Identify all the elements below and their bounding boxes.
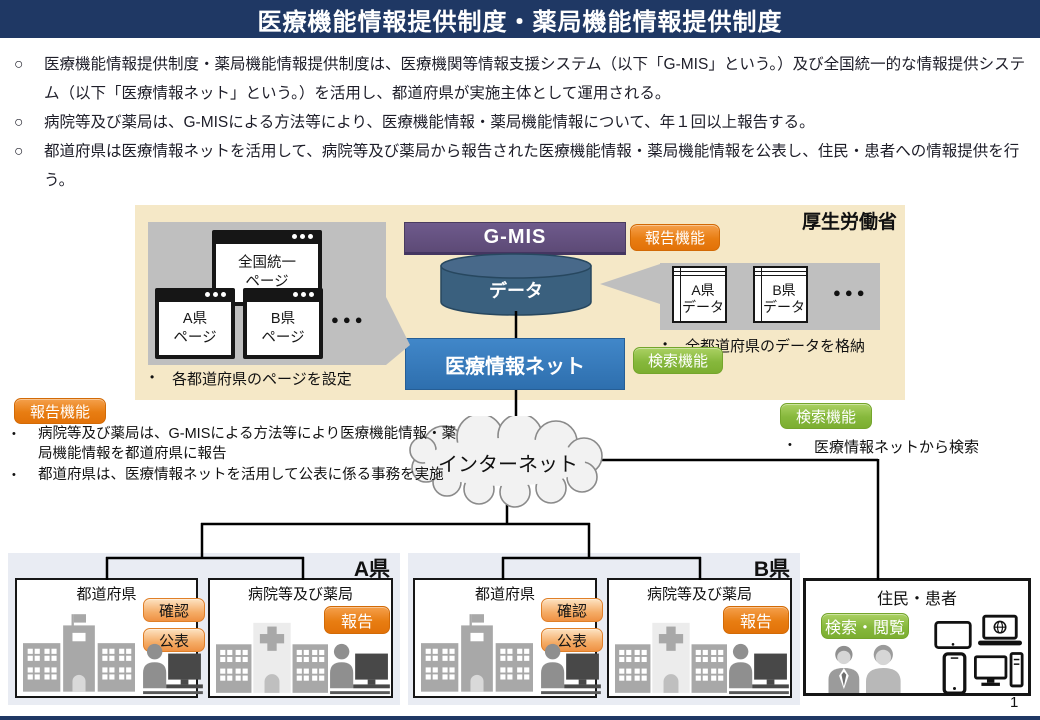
- intro-text: ○ 医療機能情報提供制度・薬局機能情報提供制度は、医療機関等情報支援システム（以…: [14, 50, 1028, 195]
- caption-text: 各都道府県のページを設定: [172, 368, 352, 389]
- bullet-marker: ○: [14, 50, 44, 108]
- data-cylinder: データ: [435, 251, 597, 317]
- confirm-badge: 確認: [143, 598, 205, 622]
- data-table-icon-a: A県 データ: [672, 266, 727, 323]
- page-title: 医療機能情報提供制度・薬局機能情報提供制度: [258, 2, 783, 37]
- ellipsis-dots: ●●●: [331, 312, 367, 327]
- note-bullet: • 病院等及び薬局は、G-MISによる方法等により医療機能情報・薬局機能情報を都…: [12, 424, 467, 465]
- intro-bullet: ○ 病院等及び薬局は、G-MISによる方法等により、医療機能情報・薬局機能情報に…: [14, 108, 1028, 137]
- report-function-badge-left: 報告機能: [14, 398, 106, 424]
- bottom-accent-bar: [0, 716, 1040, 720]
- person-computer-icon: [537, 642, 603, 696]
- mhlw-panel: 厚生労働省 全国統一 ページ A県 ページ B県: [135, 205, 905, 400]
- slide-root: 医療機能情報提供制度・薬局機能情報提供制度 ○ 医療機能情報提供制度・薬局機能情…: [0, 0, 1040, 720]
- note-text: 病院等及び薬局は、G-MISによる方法等により医療機能情報・薬局機能情報を都道府…: [38, 424, 467, 465]
- desktop-pc-icon: [974, 652, 1024, 693]
- bullet-marker: •: [788, 436, 814, 457]
- cylinder-label: データ: [435, 277, 597, 303]
- person-computer-icon: [139, 642, 205, 696]
- bullet-marker: ○: [14, 137, 44, 195]
- table-label: データ: [763, 299, 805, 316]
- page-number: 1: [1010, 694, 1018, 711]
- report-badge: 報告: [723, 606, 789, 634]
- table-label: データ: [682, 299, 724, 316]
- confirm-badge: 確認: [541, 598, 603, 622]
- hospital-building-icon: [216, 618, 328, 693]
- bullet-marker: •: [12, 424, 38, 465]
- hospital-building-icon: [615, 618, 727, 693]
- hospital-box-b: 病院等及び薬局 報告: [607, 578, 792, 698]
- residents-box: 住民・患者 検索・閲覧: [803, 578, 1031, 696]
- residents-title: 住民・患者: [806, 585, 1028, 609]
- hospital-title: 病院等及び薬局: [609, 583, 790, 604]
- medical-info-net-box: 医療情報ネット: [405, 338, 625, 390]
- laptop-icon: [978, 614, 1022, 648]
- table-label: A県: [691, 282, 714, 299]
- window-label: A県: [183, 310, 207, 329]
- bullet-text: 病院等及び薬局は、G-MISによる方法等により、医療機能情報・薬局機能情報につい…: [44, 108, 1028, 137]
- report-note: • 病院等及び薬局は、G-MISによる方法等により医療機能情報・薬局機能情報を都…: [12, 424, 467, 485]
- search-note: • 医療情報ネットから検索: [788, 436, 979, 457]
- bullet-text: 医療機能情報提供制度・薬局機能情報提供制度は、医療機関等情報支援システム（以下「…: [44, 50, 1028, 108]
- bullet-marker: ○: [14, 108, 44, 137]
- browser-window-pref-a: A県 ページ: [155, 288, 235, 359]
- tablet-icon: [934, 621, 972, 649]
- note-bullet: • 都道府県は、医療情報ネットを活用して公表に係る事務を実施: [12, 465, 467, 485]
- government-building-icon: [421, 612, 533, 692]
- hospital-title: 病院等及び薬局: [210, 583, 391, 604]
- government-building-icon: [23, 612, 135, 692]
- prefecture-a-panel: A県 都道府県 確認 公表 病院等及び薬局 報告: [8, 553, 400, 705]
- search-view-badge: 検索・閲覧: [821, 613, 909, 639]
- person-computer-icon: [725, 642, 791, 696]
- window-label: 全国統一: [238, 254, 296, 273]
- gov-box-b: 都道府県 確認 公表: [413, 578, 597, 698]
- window-label: B県: [271, 310, 295, 329]
- bullet-marker: •: [150, 368, 172, 389]
- window-dots-icon: [221, 292, 226, 297]
- bullet-text: 都道府県は医療情報ネットを活用して、病院等及び薬局から報告された医療機能情報・薬…: [44, 137, 1028, 195]
- slide-title-bar: 医療機能情報提供制度・薬局機能情報提供制度: [0, 0, 1040, 38]
- window-label: ページ: [261, 329, 304, 348]
- search-function-badge: 検索機能: [633, 347, 723, 374]
- search-function-badge-right: 検索機能: [780, 403, 872, 429]
- prefecture-pages-panel: 全国統一 ページ A県 ページ B県 ページ ●●●: [148, 222, 386, 365]
- intro-bullet: ○ 医療機能情報提供制度・薬局機能情報提供制度は、医療機関等情報支援システム（以…: [14, 50, 1028, 108]
- note-text: 都道府県は、医療情報ネットを活用して公表に係る事務を実施: [38, 465, 444, 485]
- person-computer-icon: [326, 642, 392, 696]
- mhlw-label: 厚生労働省: [802, 207, 897, 234]
- hospital-box-a: 病院等及び薬局 報告: [208, 578, 393, 698]
- residents-people-icon: [822, 643, 910, 693]
- table-label: B県: [772, 282, 795, 299]
- report-badge: 報告: [324, 606, 390, 634]
- data-table-icon-b: B県 データ: [753, 266, 808, 323]
- smartphone-icon: [942, 652, 967, 695]
- pages-caption: • 各都道府県のページを設定: [150, 368, 352, 389]
- prefecture-data-panel: A県 データ B県 データ ●●●: [660, 263, 880, 330]
- gov-box-a: 都道府県 確認 公表: [15, 578, 198, 698]
- browser-window-pref-b: B県 ページ: [243, 288, 323, 359]
- bullet-marker: •: [12, 465, 38, 485]
- window-label: ページ: [173, 329, 216, 348]
- report-function-badge: 報告機能: [630, 224, 720, 251]
- window-dots-icon: [309, 292, 314, 297]
- note-text: 医療情報ネットから検索: [814, 436, 979, 457]
- ellipsis-dots: ●●●: [833, 285, 869, 300]
- window-dots-icon: [308, 234, 313, 239]
- intro-bullet: ○ 都道府県は医療情報ネットを活用して、病院等及び薬局から報告された医療機能情報…: [14, 137, 1028, 195]
- prefecture-b-panel: B県 都道府県 確認 公表 病院等及び薬局 報告: [408, 553, 800, 705]
